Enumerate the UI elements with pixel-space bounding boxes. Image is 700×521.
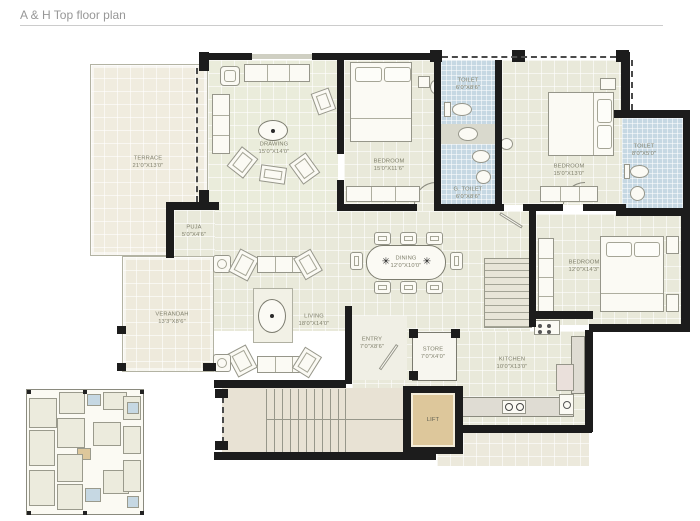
key-plan xyxy=(26,389,144,515)
key-plan-room xyxy=(29,430,55,466)
page-title: A & H Top floor plan xyxy=(20,8,126,22)
wall-column xyxy=(117,326,126,334)
room-label-bedroom1: BEDROOM15'0"X11'6" xyxy=(374,157,405,173)
bedside-table xyxy=(666,236,679,254)
room-label-puja: PUJA5'0"X4'6" xyxy=(182,223,206,239)
wall-column xyxy=(215,389,228,398)
dining-chair xyxy=(400,232,417,245)
wall-column xyxy=(451,329,460,338)
wall-segment xyxy=(214,452,436,460)
open-terrace-dashed-wall xyxy=(631,60,633,110)
room-label-toilet1: TOILET6'0"X8'6" xyxy=(456,76,480,92)
room-label-drawing: DRAWING15'0"X14'0" xyxy=(259,140,290,156)
room-label-living: LIVING18'0"X14'0" xyxy=(299,312,330,328)
wall-column xyxy=(215,441,228,450)
wall-segment xyxy=(337,204,417,211)
bed xyxy=(600,236,664,312)
key-plan-room xyxy=(57,454,83,482)
table-motif-icon: ✳ xyxy=(423,257,431,268)
floor-plan-page: A & H Top floor plan xyxy=(0,0,700,521)
bedside-table xyxy=(600,78,616,90)
wall-segment xyxy=(585,330,593,432)
wash-basin xyxy=(630,186,645,201)
wall-segment xyxy=(214,380,346,388)
kitchen-sink xyxy=(559,394,574,415)
wall-segment xyxy=(434,60,441,211)
wall-segment xyxy=(681,214,690,332)
toilet-wc xyxy=(458,127,478,141)
sofa xyxy=(244,64,310,82)
hob-counter xyxy=(534,320,560,335)
side-table xyxy=(220,66,240,86)
wall-segment xyxy=(459,425,592,433)
wash-basin xyxy=(476,170,491,184)
key-plan-room xyxy=(29,470,55,506)
key-plan-toilet xyxy=(87,394,101,406)
room-label-entry: ENTRY7'0"X8'6" xyxy=(360,335,384,351)
window xyxy=(252,53,312,60)
wardrobe xyxy=(538,238,554,314)
key-plan-room xyxy=(57,418,85,448)
room-label-verandah: VERANDAH13'3"X8'6" xyxy=(155,310,188,326)
stair-open-edge xyxy=(222,397,224,443)
terrace-dashed-line xyxy=(196,68,198,202)
key-plan-room xyxy=(93,422,121,446)
wall-segment xyxy=(495,60,502,211)
wall-segment xyxy=(345,306,352,384)
wall-segment xyxy=(616,208,688,216)
dining-chair xyxy=(426,281,443,294)
dining-chair xyxy=(374,232,391,245)
room-label-g-toilet: G. TOILET6'0"X8'6" xyxy=(454,185,483,201)
key-plan-room xyxy=(29,398,57,428)
key-plan-room xyxy=(59,392,85,414)
bed xyxy=(548,92,614,156)
wall-segment xyxy=(530,311,593,319)
bedside-table xyxy=(666,294,679,312)
main-staircase xyxy=(266,389,346,453)
key-plan-room xyxy=(123,426,141,454)
wall-segment xyxy=(206,53,435,60)
room-label-kitchen: KITCHEN10'0"X13'0" xyxy=(497,355,528,371)
dining-chair xyxy=(426,232,443,245)
wash-basin xyxy=(418,76,430,88)
room-label-toilet2: TOILET8'0"X5'0" xyxy=(632,142,656,158)
wall-column xyxy=(203,363,216,371)
bed xyxy=(350,62,412,142)
room-label-bedroom2: BEDROOM15'0"X13'0" xyxy=(554,162,585,178)
coffee-table xyxy=(258,120,288,141)
wall-segment xyxy=(434,204,504,211)
toilet-wc xyxy=(452,103,472,116)
sofa xyxy=(212,94,230,154)
wall-column xyxy=(117,363,126,371)
key-plan-room xyxy=(57,484,83,510)
refrigerator xyxy=(556,364,574,391)
key-plan-room xyxy=(123,460,141,492)
wall-segment xyxy=(589,324,688,332)
stair-edge-line xyxy=(345,389,346,453)
wall-segment xyxy=(621,52,630,116)
center-table xyxy=(258,299,286,333)
key-plan-toilet xyxy=(85,488,101,502)
wall-column xyxy=(409,371,418,380)
dining-chair xyxy=(350,252,363,270)
room-label-bedroom3: BEDROOM12'0"X14'3" xyxy=(569,258,600,274)
title-divider xyxy=(20,25,663,26)
room-label-terrace: TERRACE21'0"X13'0" xyxy=(133,154,164,170)
stair-landing-line xyxy=(266,419,404,420)
wardrobe xyxy=(540,186,598,202)
key-plan-toilet xyxy=(127,496,139,508)
dining-chair xyxy=(374,281,391,294)
room-label-dining: DINING12'0"X10'0" xyxy=(391,254,422,270)
gas-stove xyxy=(502,400,526,414)
open-terrace-dashed-wall xyxy=(442,56,616,58)
wall-segment xyxy=(166,202,174,258)
wall-segment xyxy=(683,110,690,216)
toilet-cistern xyxy=(444,102,451,117)
wall-segment xyxy=(583,204,626,211)
wall-segment xyxy=(614,110,690,118)
wall-segment xyxy=(529,211,536,327)
armchair xyxy=(259,164,287,184)
table-motif-icon: ✳ xyxy=(382,257,390,268)
room-label-lift: LIFT xyxy=(427,416,439,424)
toilet-wc xyxy=(630,165,649,178)
dining-chair xyxy=(450,252,463,270)
duplex-staircase xyxy=(484,258,532,328)
key-plan-toilet xyxy=(127,402,139,414)
wall-segment xyxy=(337,60,344,154)
wall-segment xyxy=(523,204,563,211)
wall-column xyxy=(409,329,418,338)
toilet-wc xyxy=(472,150,490,163)
room-label-store: STORE7'0"X4'0" xyxy=(421,345,445,361)
toilet-cistern xyxy=(624,164,630,179)
armchair xyxy=(292,347,322,379)
wardrobe xyxy=(346,186,420,202)
dining-chair xyxy=(400,281,417,294)
